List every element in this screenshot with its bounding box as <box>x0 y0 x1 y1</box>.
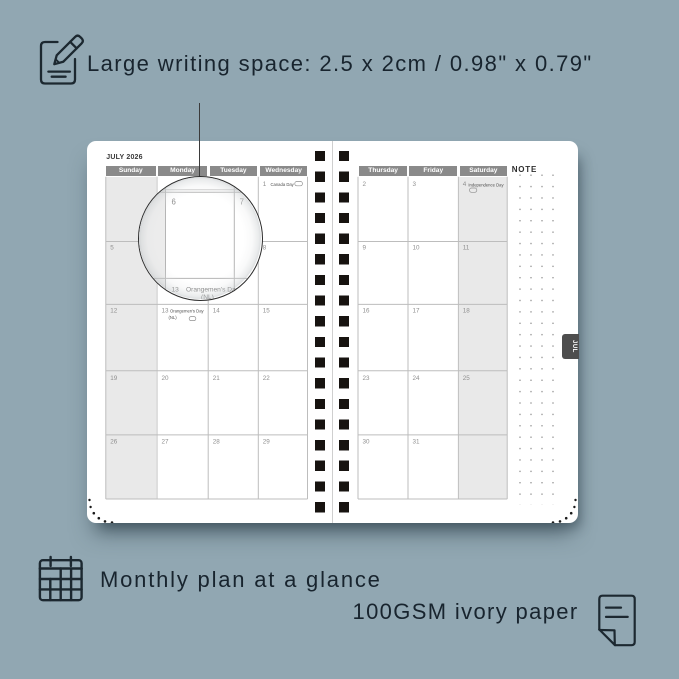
svg-text:16: 16 <box>363 308 371 315</box>
svg-text:11: 11 <box>463 245 470 252</box>
svg-text:9: 9 <box>363 245 367 252</box>
svg-text:13: 13 <box>162 308 170 315</box>
svg-text:29: 29 <box>263 439 271 446</box>
svg-text:24: 24 <box>413 375 421 382</box>
svg-text:(NL): (NL) <box>169 315 178 320</box>
svg-text:3: 3 <box>413 181 417 188</box>
svg-text:14: 14 <box>213 308 221 315</box>
svg-text:17: 17 <box>413 308 421 315</box>
svg-text:21: 21 <box>213 375 221 382</box>
svg-text:1: 1 <box>263 181 267 188</box>
svg-text:8: 8 <box>263 245 267 252</box>
svg-text:30: 30 <box>363 439 371 446</box>
svg-text:5: 5 <box>110 245 114 252</box>
svg-text:4: 4 <box>463 181 467 188</box>
svg-text:18: 18 <box>463 308 471 315</box>
svg-text:23: 23 <box>363 375 371 382</box>
svg-text:20: 20 <box>162 375 170 382</box>
svg-text:22: 22 <box>263 375 271 382</box>
svg-text:25: 25 <box>463 375 471 382</box>
svg-text:Canada Day: Canada Day <box>271 182 295 187</box>
svg-text:31: 31 <box>413 439 421 446</box>
svg-text:Orangemen's Day: Orangemen's Day <box>170 309 205 314</box>
svg-text:27: 27 <box>162 439 170 446</box>
svg-text:19: 19 <box>110 375 118 382</box>
svg-text:28: 28 <box>213 439 221 446</box>
svg-text:Independence Day: Independence Day <box>468 182 504 187</box>
svg-text:10: 10 <box>413 245 421 252</box>
svg-text:15: 15 <box>263 308 271 315</box>
svg-text:26: 26 <box>110 439 118 446</box>
svg-text:12: 12 <box>110 308 118 315</box>
svg-text:2: 2 <box>363 181 367 188</box>
